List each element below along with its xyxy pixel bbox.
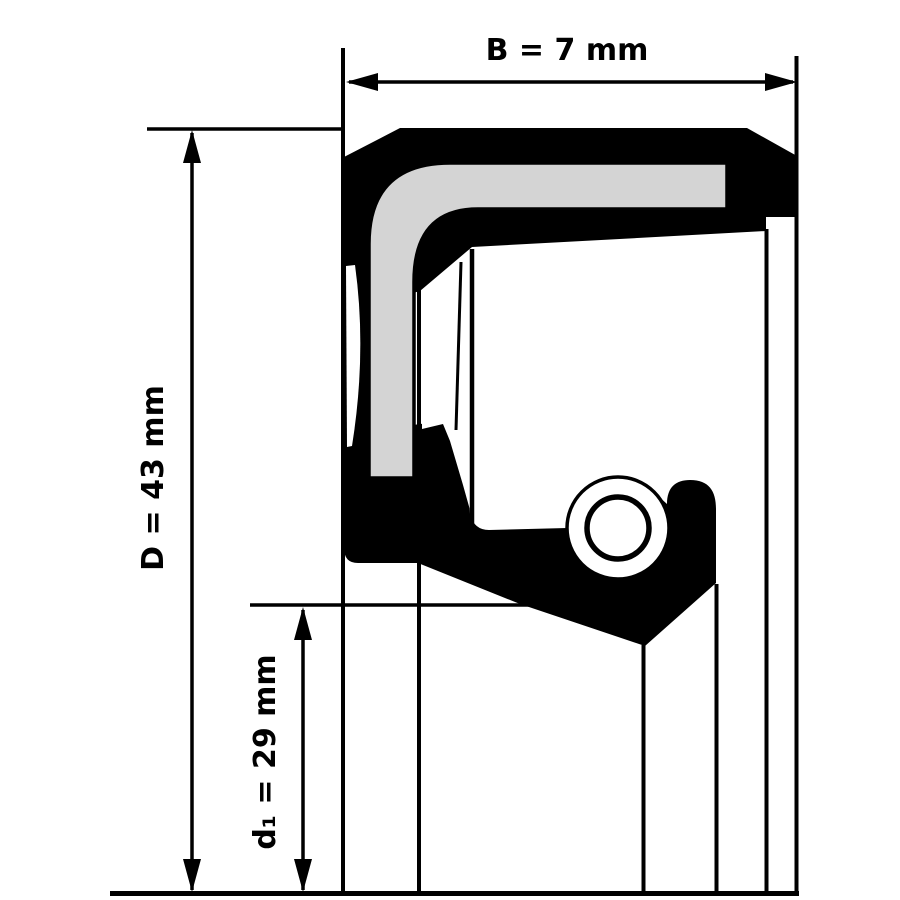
dimension-label-outer-diameter: D = 43 mm [136, 385, 171, 571]
dimension-label-width: B = 7 mm [486, 33, 649, 68]
dimension-label-inner-diameter: d₁ = 29 mm [248, 654, 283, 849]
seal-drawing-canvas: B = 7 mm D = 43 mm d₁ = 29 mm [0, 0, 900, 900]
garter-spring-circle [587, 497, 649, 559]
seal-technical-drawing: B = 7 mm D = 43 mm d₁ = 29 mm [0, 0, 900, 900]
